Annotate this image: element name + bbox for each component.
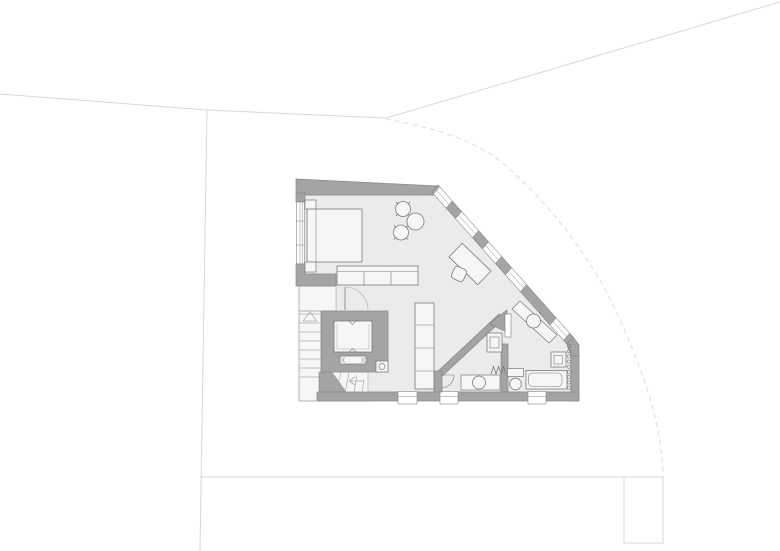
coffee-table [407,213,424,230]
toilet-cistern [508,369,524,377]
shaft-corner-box [376,361,388,372]
nightstand-top [305,200,316,209]
site-structure-outline [624,477,663,543]
wardrobe [415,303,434,389]
window-bottom-2 [440,392,458,405]
washing-machine [551,352,566,367]
laundry-counter [461,375,500,390]
elevator-car [334,321,372,352]
nightstand-bottom [305,262,316,272]
site-plan-canvas [0,0,780,551]
toilet-bowl [510,378,522,390]
wall-left-upper [296,193,305,202]
bathroom-washbasin [527,314,541,328]
window-bottom-1 [398,392,417,405]
window-left [297,202,305,264]
floor-plan-drawing [0,0,780,551]
bed [307,209,362,262]
bathroom-door-leaf [505,314,511,337]
elevator-counterweight [340,356,366,364]
wall-interior-stub [434,371,442,392]
boiler-unit [487,333,502,352]
site-boundary-upper [0,2,780,118]
sofa [337,266,418,285]
stairwell-landing [299,286,336,311]
site-boundary-vertical [200,110,207,551]
window-bottom-3 [528,392,546,405]
wall-top [296,179,441,195]
stair-flight [299,311,321,401]
